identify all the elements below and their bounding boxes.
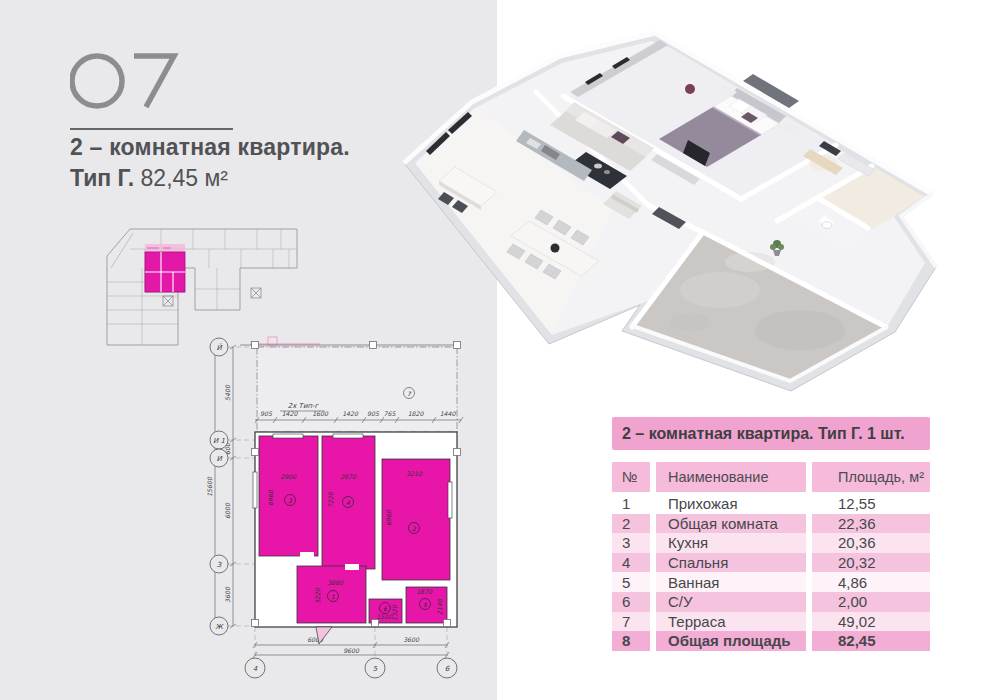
dim-label: 1420 — [342, 410, 359, 417]
row-name: Кухня — [656, 533, 806, 553]
row-num: 1 — [612, 494, 650, 514]
digit-zero — [72, 56, 122, 106]
table-title: 2 – комнатная квартира. Тип Г. 1 шт. — [612, 417, 930, 450]
table-row: 4 Спальня 20,32 — [612, 553, 930, 573]
building-partitions — [107, 229, 297, 345]
row-name: С/У — [656, 592, 806, 612]
row-name: Общая комната — [656, 514, 806, 534]
row-area: 20,36 — [812, 533, 930, 553]
ottoman — [685, 84, 695, 94]
row-num: 3 — [612, 533, 650, 553]
row-name: Общая площадь — [656, 631, 806, 651]
dim-label: 9600 — [343, 647, 360, 654]
digit-seven — [134, 56, 174, 107]
area-value: 82,45 м² — [141, 165, 228, 191]
row-area: 20,32 — [812, 553, 930, 573]
dim-label: 2870 — [340, 473, 357, 480]
table-row: 6 С/У 2,00 — [612, 592, 930, 612]
axis-label: И — [216, 455, 222, 463]
room-living — [382, 459, 450, 580]
row-area: 2,00 — [812, 592, 930, 612]
axis-label: 5 — [373, 665, 378, 673]
row-area: 4,86 — [812, 572, 930, 592]
room-number: 1 — [331, 593, 335, 600]
dim-label: 1320 — [391, 604, 398, 621]
centerpiece-bowl — [551, 244, 560, 253]
row-name: Терраса — [656, 612, 806, 632]
building-outline — [107, 229, 297, 345]
table-body: 1 Прихожая 12,55 2 Общая комната 22,36 3… — [612, 494, 930, 651]
table-header-row: № Наименование Площадь, м² — [612, 462, 930, 492]
row-area: 82,45 — [812, 631, 930, 651]
col-header-area: Площадь, м² — [812, 462, 930, 492]
dim-label: 905 — [367, 410, 380, 417]
table-row: 7 Терраса 49,02 — [612, 612, 930, 632]
apartment-3d-render — [395, 15, 940, 405]
table-row: 1 Прихожая 12,55 — [612, 494, 930, 514]
row-num: 2 — [612, 514, 650, 534]
row-name: Спальня — [656, 553, 806, 573]
dim-label: 1420 — [282, 410, 299, 417]
title-divider — [70, 128, 233, 130]
dim-label: 6000 — [224, 502, 231, 519]
brochure-page: 07 2 – комнатная квартира. Тип Г. 82,45 … — [0, 0, 990, 700]
room-number: 4 — [346, 499, 350, 506]
table-row: 3 Кухня 20,36 — [612, 533, 930, 553]
plan-type-label: 2x Тип-г — [288, 402, 320, 410]
dim-label: 5400 — [224, 384, 231, 401]
dim-label: 1870 — [416, 588, 433, 595]
toilet — [822, 222, 832, 229]
axis-label: Й — [216, 343, 222, 352]
dim-label: 3220 — [314, 587, 321, 604]
axis-label: 6 — [445, 665, 450, 673]
row-num: 8 — [612, 631, 650, 651]
dim-label: 3880 — [327, 579, 344, 586]
row-num: 6 — [612, 592, 650, 612]
page-number — [70, 50, 185, 112]
dim-label: 765 — [384, 410, 397, 417]
dim-label: 6960 — [267, 489, 274, 506]
area-table: 2 – комнатная квартира. Тип Г. 1 шт. № Н… — [612, 417, 930, 651]
table-row: 5 Ванная 4,86 — [612, 572, 930, 592]
axis-label: И 1 — [213, 437, 225, 445]
dim-label: 7220 — [327, 491, 334, 508]
row-area: 12,55 — [812, 494, 930, 514]
col-header-num: № — [612, 462, 650, 492]
dim-label: 905 — [260, 410, 273, 417]
dim-label: 3600 — [403, 636, 420, 643]
table-decor — [604, 170, 610, 174]
table-row: 2 Общая комната 22,36 — [612, 514, 930, 534]
row-area: 49,02 — [812, 612, 930, 632]
entry-door-swing — [316, 627, 332, 644]
dim-label: 2900 — [280, 473, 297, 480]
dim-label: 1820 — [408, 410, 425, 417]
dim-label: 1600 — [312, 410, 329, 417]
dim-label: 2140 — [436, 598, 443, 615]
row-area: 22,36 — [812, 514, 930, 534]
building-locator-plan — [75, 226, 315, 348]
dim-label: 6960 — [385, 509, 392, 526]
table-decor — [594, 164, 602, 169]
dim-label: 1440 — [440, 410, 457, 417]
row-name: Ванная — [656, 572, 806, 592]
row-num: 5 — [612, 572, 650, 592]
row-name: Прихожая — [656, 494, 806, 514]
type-label: Тип Г. — [70, 165, 134, 191]
table-row-total: 8 Общая площадь 82,45 — [612, 631, 930, 651]
row-num: 4 — [612, 553, 650, 573]
col-header-name: Наименование — [656, 462, 806, 492]
dim-label: 3600 — [224, 586, 231, 603]
dim-label: 3210 — [406, 470, 423, 477]
axis-label: 4 — [253, 665, 258, 673]
dim-label: 15600 — [206, 476, 213, 497]
row-num: 7 — [612, 612, 650, 632]
